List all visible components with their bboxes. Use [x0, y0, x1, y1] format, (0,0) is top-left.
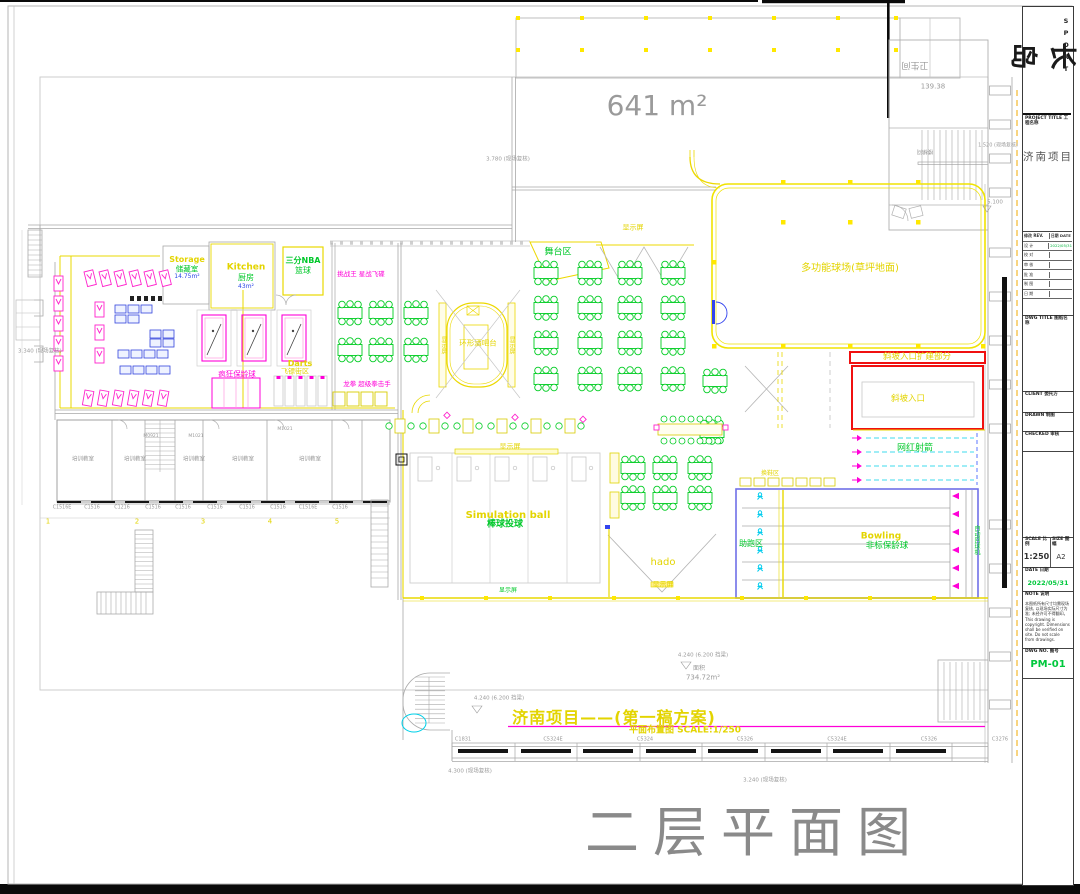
court-label: 多功能球场(草坪地面) — [801, 264, 899, 274]
dim-1520: 1.520 (现场复核) — [978, 144, 1018, 149]
grid-num-5: 5 — [335, 519, 339, 526]
south-corridor — [403, 596, 988, 601]
ramp-highlight — [850, 352, 985, 429]
room-window-code-7: C1516 — [239, 507, 255, 512]
south-window-code-5: C5324E — [827, 738, 846, 743]
archery — [852, 430, 985, 485]
room-window-code-2: C1516 — [84, 507, 100, 512]
title-block: 长岛 SPORT PROJECT TITLE 工程名称 济南项目 修改 REV.… — [1022, 6, 1074, 886]
notes-text: 本图纸所有尺寸均需现场复核, 以现场实际尺寸为准; 未经许可不得翻印。 This… — [1025, 601, 1070, 643]
date-label: DATE 日期 — [1025, 569, 1071, 574]
south-window-code-6: C5326 — [921, 738, 937, 743]
storage-area-label: 14.75m² — [174, 274, 199, 280]
dim-3340: 3.340 (现场复核) — [18, 349, 62, 355]
hado-label: hado — [651, 558, 676, 568]
rev-row-value: 2022/05/31 — [1049, 243, 1072, 248]
ramp-entrance-label: 斜坡入口 — [891, 395, 925, 404]
rev-row-label: 批 准 — [1023, 272, 1050, 278]
rev-header-right: 日期 DATE — [1050, 233, 1072, 239]
room-window-code-1: C1516E — [53, 507, 72, 512]
storage-cn-label: 储藏室 — [176, 265, 199, 273]
client-label: CLIENT 委托方 — [1025, 393, 1071, 398]
room-window-code-5: C1516 — [175, 507, 191, 512]
screen-label-sim: 显示屏 — [500, 444, 521, 451]
grid-num-1: 1 — [46, 519, 50, 526]
scale-value: 1:250 — [1023, 552, 1050, 561]
screen-label-stage: 显示屏 — [623, 225, 644, 232]
darts-cn-label: 飞镖街区 — [281, 369, 309, 376]
note-label: NOTE 说明 — [1025, 593, 1071, 598]
arcade-machines — [54, 270, 174, 407]
room-window-code-10: C1516 — [332, 507, 348, 512]
dim-d: 3.240 (现场复核) — [743, 778, 787, 784]
bar-label: 环形酒吧台 — [459, 339, 497, 347]
kitchen-cn-label: 厨房 — [238, 274, 254, 282]
walls — [28, 77, 716, 761]
billiard-tables — [197, 310, 311, 366]
rev-row-label: 审 核 — [1023, 262, 1050, 268]
screen-label-hado: 显示屏 — [653, 582, 674, 589]
boxing-label: 龙拳 超级拳击手 — [343, 381, 391, 388]
rev-row-label: 设 计 — [1023, 243, 1049, 249]
archery-label: 网红射箭 — [897, 445, 933, 454]
room-window-code-4: C1516 — [145, 507, 161, 512]
banner-subtitle: 平面布置图 SCALE:1/250 — [629, 727, 741, 736]
storage-en-label: Storage — [169, 256, 205, 264]
south-window-code-3: C5324 — [637, 738, 653, 743]
crazy-bowling-label: 疯狂保龄球 — [218, 370, 256, 378]
dim-3780: 3.780 (现场复核) — [486, 157, 530, 163]
size-label: SIZE 图幅 — [1050, 537, 1072, 548]
south-window-code-2: C5324E — [543, 738, 562, 743]
room-window-code-3: C1216 — [114, 507, 130, 512]
court — [712, 180, 986, 428]
screen-strip-left: 显示屏 — [440, 336, 446, 354]
grid-num-4: 4 — [268, 519, 272, 526]
screen-strip-right: 显示屏 — [508, 336, 514, 354]
dim-5100: 5.100 — [987, 200, 1003, 206]
area-734: 734.72m² — [686, 675, 720, 682]
classroom-label-1: 培训教室 — [72, 457, 94, 463]
dim-a2: 4.240 (6.200 挡梁) — [678, 653, 728, 659]
rev-row-label: 制 图 — [1023, 281, 1050, 287]
logo-en: SPORT — [1062, 17, 1070, 77]
classroom-label-3: 培训教室 — [183, 457, 205, 463]
revision-table: 修改 REV. 日期 DATE 设 计2022/05/31 校 对 审 核 批 … — [1023, 231, 1072, 299]
screen-label-sim-south: 显示屏 — [499, 588, 517, 594]
grid-num-3: 3 — [201, 519, 205, 526]
door-code-2: M1021 — [188, 435, 203, 440]
area-label-734: 面积 — [693, 666, 705, 672]
bowling — [736, 478, 978, 598]
checked-label: CHECKED 审核 — [1025, 433, 1071, 438]
grid-num-2: 2 — [135, 519, 139, 526]
stair-label: 楼梯间 — [917, 147, 934, 153]
classrooms — [40, 420, 407, 518]
nba-label-2: 篮球 — [295, 267, 311, 275]
door-code-3: M1021 — [277, 428, 292, 433]
room-window-code-6: C1516 — [207, 507, 223, 512]
dim-139: 139.38 — [921, 84, 946, 91]
south-window-band — [452, 743, 988, 762]
classroom-label-4: 培训教室 — [232, 457, 254, 463]
rev-row-label: 校 对 — [1023, 252, 1050, 258]
top-strip — [516, 0, 960, 118]
door-code-1: M0921 — [143, 435, 158, 440]
size-value: A2 — [1050, 553, 1072, 561]
banner-title: 济南项目——(第一稿方案) — [512, 710, 716, 726]
classroom-label-5: 培训教室 — [299, 457, 321, 463]
rev-row-label: 日 期 — [1023, 291, 1050, 297]
size-cell: SIZE 图幅 A2 — [1050, 537, 1072, 567]
simulation-cn-label: 棒球投球 — [487, 521, 523, 530]
room-window-code-9: C1516E — [299, 507, 318, 512]
floorplan-sheet: 641 m² 二层平面图 济南项目——(第一稿方案) 平面布置图 SCALE:1… — [0, 0, 1080, 894]
floor-plan-title: 二层平面图 — [585, 806, 925, 860]
area-641-label: 641 m² — [607, 92, 708, 120]
room-window-code-8: C1516 — [270, 507, 286, 512]
drawn-label: DRAWN 制图 — [1025, 414, 1071, 419]
ramp-extension-label: 斜坡入口扩建部分 — [883, 353, 951, 362]
dim-c: 4.300 (现场复核) — [448, 769, 492, 775]
rev-header-left: 修改 REV. — [1023, 233, 1050, 239]
bowling-cn-label: 非标保龄球 — [866, 542, 909, 551]
shoe-change-label: 换鞋区 — [761, 471, 779, 477]
arcade-label: 挑战王 星战飞碟 — [337, 271, 385, 278]
scale-label: SCALE 比例 — [1023, 537, 1050, 548]
kitchen-en-label: Kitchen — [227, 264, 266, 273]
ball-return-label: 自动回球机 — [973, 525, 979, 555]
dim-a1: 4.240 (6.200 挡梁) — [474, 696, 524, 702]
kitchen-area-label: 43m² — [238, 284, 254, 290]
scale-cell: SCALE 比例 1:250 — [1023, 537, 1051, 567]
date-value: 2022/05/31 — [1023, 579, 1073, 587]
wc-label: 卫生间 — [901, 60, 928, 69]
classroom-label-2: 培训教室 — [124, 457, 146, 463]
project-title-label: PROJECT TITLE 工程名称 — [1025, 117, 1071, 127]
corridor-curve — [690, 150, 720, 188]
dwgno-label: DWG NO. 图号 — [1025, 650, 1071, 655]
south-window-code-1: C1831 — [455, 738, 471, 743]
south-window-code-7: C3276 — [992, 738, 1008, 743]
dwg-title-label: DWG TITLE 图纸名称 — [1025, 317, 1071, 327]
dwgno-value: PM-01 — [1023, 659, 1073, 670]
stage-label: 舞台区 — [544, 249, 571, 258]
right-corridor — [985, 77, 1017, 763]
nba-label-1: 三分NBA — [286, 257, 321, 265]
project-name: 济南项目 — [1023, 149, 1073, 164]
south-window-code-4: C5326 — [737, 738, 753, 743]
logo: 长岛 SPORT — [1023, 9, 1071, 115]
runup-label: 助跑区 — [739, 540, 763, 548]
